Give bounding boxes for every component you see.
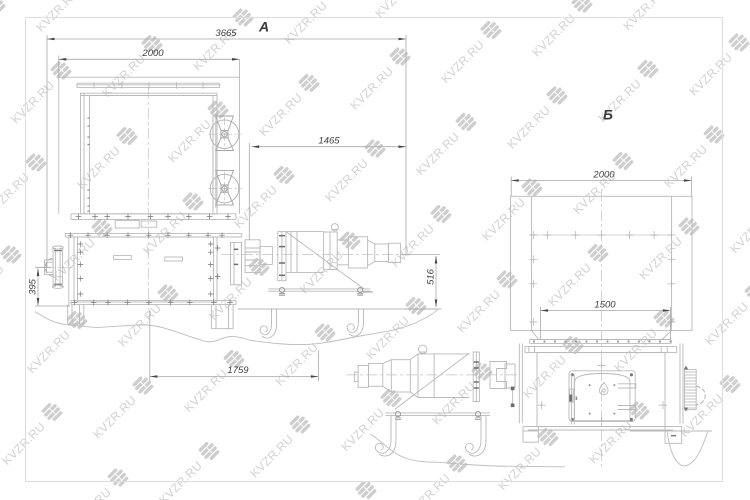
svg-text:А: А xyxy=(258,19,269,35)
svg-text:1759: 1759 xyxy=(227,365,249,376)
svg-text:1465: 1465 xyxy=(318,136,340,147)
svg-text:516: 516 xyxy=(426,268,437,285)
svg-text:395: 395 xyxy=(28,278,39,295)
svg-text:2000: 2000 xyxy=(141,48,164,59)
svg-text:2000: 2000 xyxy=(592,170,615,181)
svg-text:Б: Б xyxy=(603,107,613,123)
svg-text:3665: 3665 xyxy=(215,28,237,39)
svg-text:1500: 1500 xyxy=(594,300,616,311)
